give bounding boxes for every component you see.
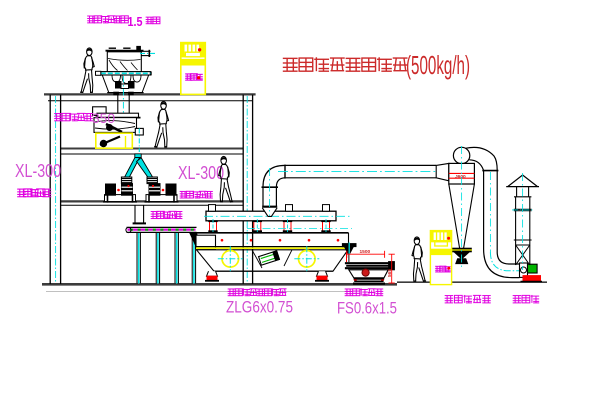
svg-text:J600: J600 — [455, 174, 466, 180]
svg-text:1.5: 1.5 — [128, 14, 143, 29]
svg-text:(500kg/h): (500kg/h) — [406, 50, 470, 80]
svg-text:ZLG6x0.75: ZLG6x0.75 — [226, 299, 293, 317]
svg-text:565: 565 — [387, 269, 393, 277]
svg-text:FS0.6x1.5: FS0.6x1.5 — [337, 300, 397, 318]
svg-text:XL-300: XL-300 — [15, 160, 61, 181]
svg-text:350: 350 — [92, 110, 115, 126]
svg-text:1500: 1500 — [360, 249, 371, 255]
svg-text:XL-300: XL-300 — [178, 162, 224, 183]
